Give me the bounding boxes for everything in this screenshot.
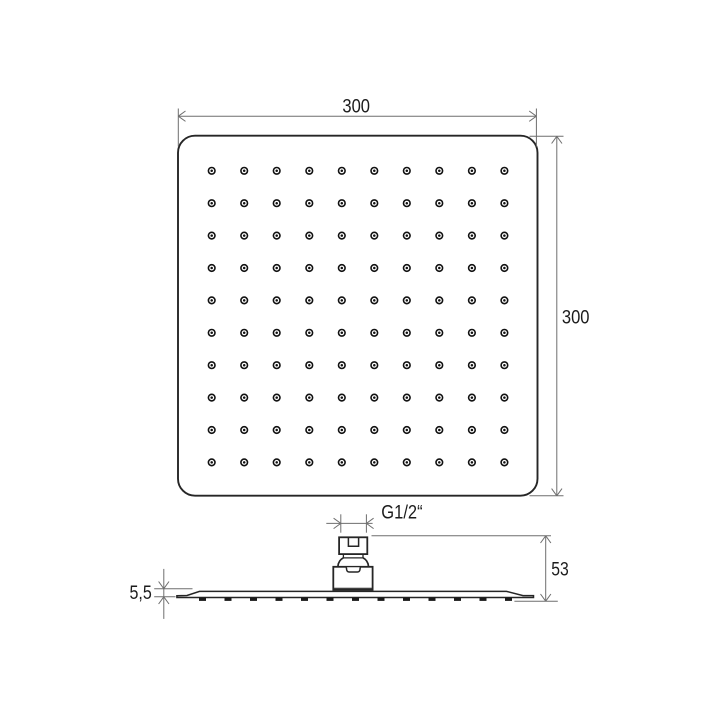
svg-text:300: 300	[342, 97, 370, 118]
svg-text:300: 300	[562, 307, 590, 328]
svg-text:53: 53	[551, 560, 569, 581]
svg-text:5,5: 5,5	[130, 583, 152, 604]
svg-text:G1/2“: G1/2“	[381, 503, 422, 524]
